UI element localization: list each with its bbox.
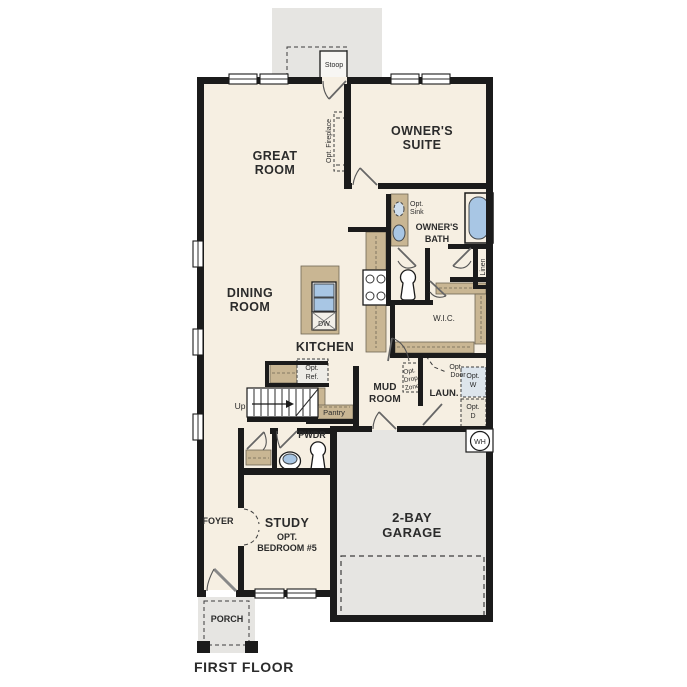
wall-segment xyxy=(238,468,336,475)
wall-segment xyxy=(473,285,493,289)
wall-segment xyxy=(197,590,206,597)
pantry-label: Pantry xyxy=(323,408,345,417)
wall-segment xyxy=(344,77,351,189)
dining-room-label-line1: DINING xyxy=(227,286,273,300)
wall-segment xyxy=(347,77,493,84)
stoop-label: Stoop xyxy=(325,62,343,69)
island-sink-bowl-2 xyxy=(314,298,334,311)
study-label-line1: STUDY xyxy=(265,516,310,530)
wall-segment xyxy=(267,383,329,387)
water-heater: WH xyxy=(466,429,493,452)
wall-segment xyxy=(386,194,391,306)
garage-label-line1: 2-BAY xyxy=(392,510,432,525)
optional-dryer-label-line2: D xyxy=(470,413,475,420)
wall-segment xyxy=(353,366,359,426)
porch-post-left xyxy=(197,641,210,653)
up-label: Up xyxy=(235,401,246,411)
wic-shelf-bottom xyxy=(395,342,474,353)
stairs xyxy=(247,388,318,417)
wall-segment xyxy=(473,249,478,289)
wall-segment xyxy=(238,546,244,593)
study-label-line3: BEDROOM #5 xyxy=(257,543,317,553)
porch-post-right xyxy=(245,641,258,653)
first-floor-plan: Stoop xyxy=(0,0,687,687)
great-room-label-line1: GREAT xyxy=(253,149,298,163)
dishwasher-label: DW xyxy=(318,321,330,328)
wall-segment xyxy=(425,248,430,305)
optional-washer-label-line1: Opt. xyxy=(466,373,479,380)
porch-label: PORCH xyxy=(211,614,244,624)
mud-room-label-line2: ROOM xyxy=(369,394,401,405)
garage-label-line2: GARAGE xyxy=(382,525,441,540)
powder-label: PWDR xyxy=(298,430,326,440)
optional-sink-label-line2: Sink xyxy=(410,209,424,216)
plan-title: FIRST FLOOR xyxy=(194,659,294,675)
optional-door-label-line1: Opt. xyxy=(449,364,462,371)
optional-sink-basin xyxy=(394,202,404,216)
wall-segment xyxy=(344,183,352,189)
optional-ref-label-line2: Ref. xyxy=(306,374,319,381)
wall-segment xyxy=(331,615,493,622)
wic-label: W.I.C. xyxy=(433,314,455,323)
great-room-label-line2: ROOM xyxy=(255,163,296,177)
study-label-line2: OPT. xyxy=(277,532,297,542)
wall-segment xyxy=(272,428,277,472)
closet-shelf xyxy=(246,450,271,465)
island-sink-bowl-1 xyxy=(314,284,334,297)
kitchen-label: KITCHEN xyxy=(296,340,354,354)
dining-room-label-line2: ROOM xyxy=(230,300,271,314)
wall-segment xyxy=(337,426,372,432)
water-heater-label: WH xyxy=(474,439,486,446)
floorplan-page: Stoop xyxy=(0,0,687,687)
owners-suite-label-line1: OWNER'S xyxy=(391,124,453,138)
stove xyxy=(363,270,388,305)
laundry-label: LAUN. xyxy=(429,388,458,399)
linen-label: Linen xyxy=(480,258,487,275)
foyer-label: FOYER xyxy=(202,516,234,526)
shower-pan xyxy=(469,197,488,239)
owners-bath-label-line2: BATH xyxy=(425,234,449,244)
powder-sink-basin xyxy=(283,454,297,464)
optional-dryer-label-line1: Opt. xyxy=(466,404,479,411)
wall-segment xyxy=(330,426,337,622)
optional-washer-label-line2: W xyxy=(470,382,477,389)
optional-ref-label-line1: Opt. xyxy=(305,365,318,372)
optional-sink-label-line1: Opt. xyxy=(410,201,423,208)
mud-room-label-line1: MUD xyxy=(373,382,396,393)
wall-segment xyxy=(390,353,490,358)
vanity-sink-basin xyxy=(393,225,405,241)
wall-segment xyxy=(267,361,328,365)
wall-segment xyxy=(265,361,269,387)
wall-segment xyxy=(378,183,493,189)
toilet-owners-bath xyxy=(401,270,416,300)
wall-segment xyxy=(450,277,493,282)
optional-door-label-line2: Door xyxy=(450,372,466,379)
owners-bath-label-line1: OWNER'S xyxy=(416,222,459,232)
wall-segment xyxy=(486,77,493,622)
wall-segment xyxy=(348,227,388,232)
owners-suite-label-line2: SUITE xyxy=(403,138,442,152)
optional-fireplace-label: Opt. Fireplace xyxy=(326,119,333,163)
toilet-powder xyxy=(311,442,326,472)
